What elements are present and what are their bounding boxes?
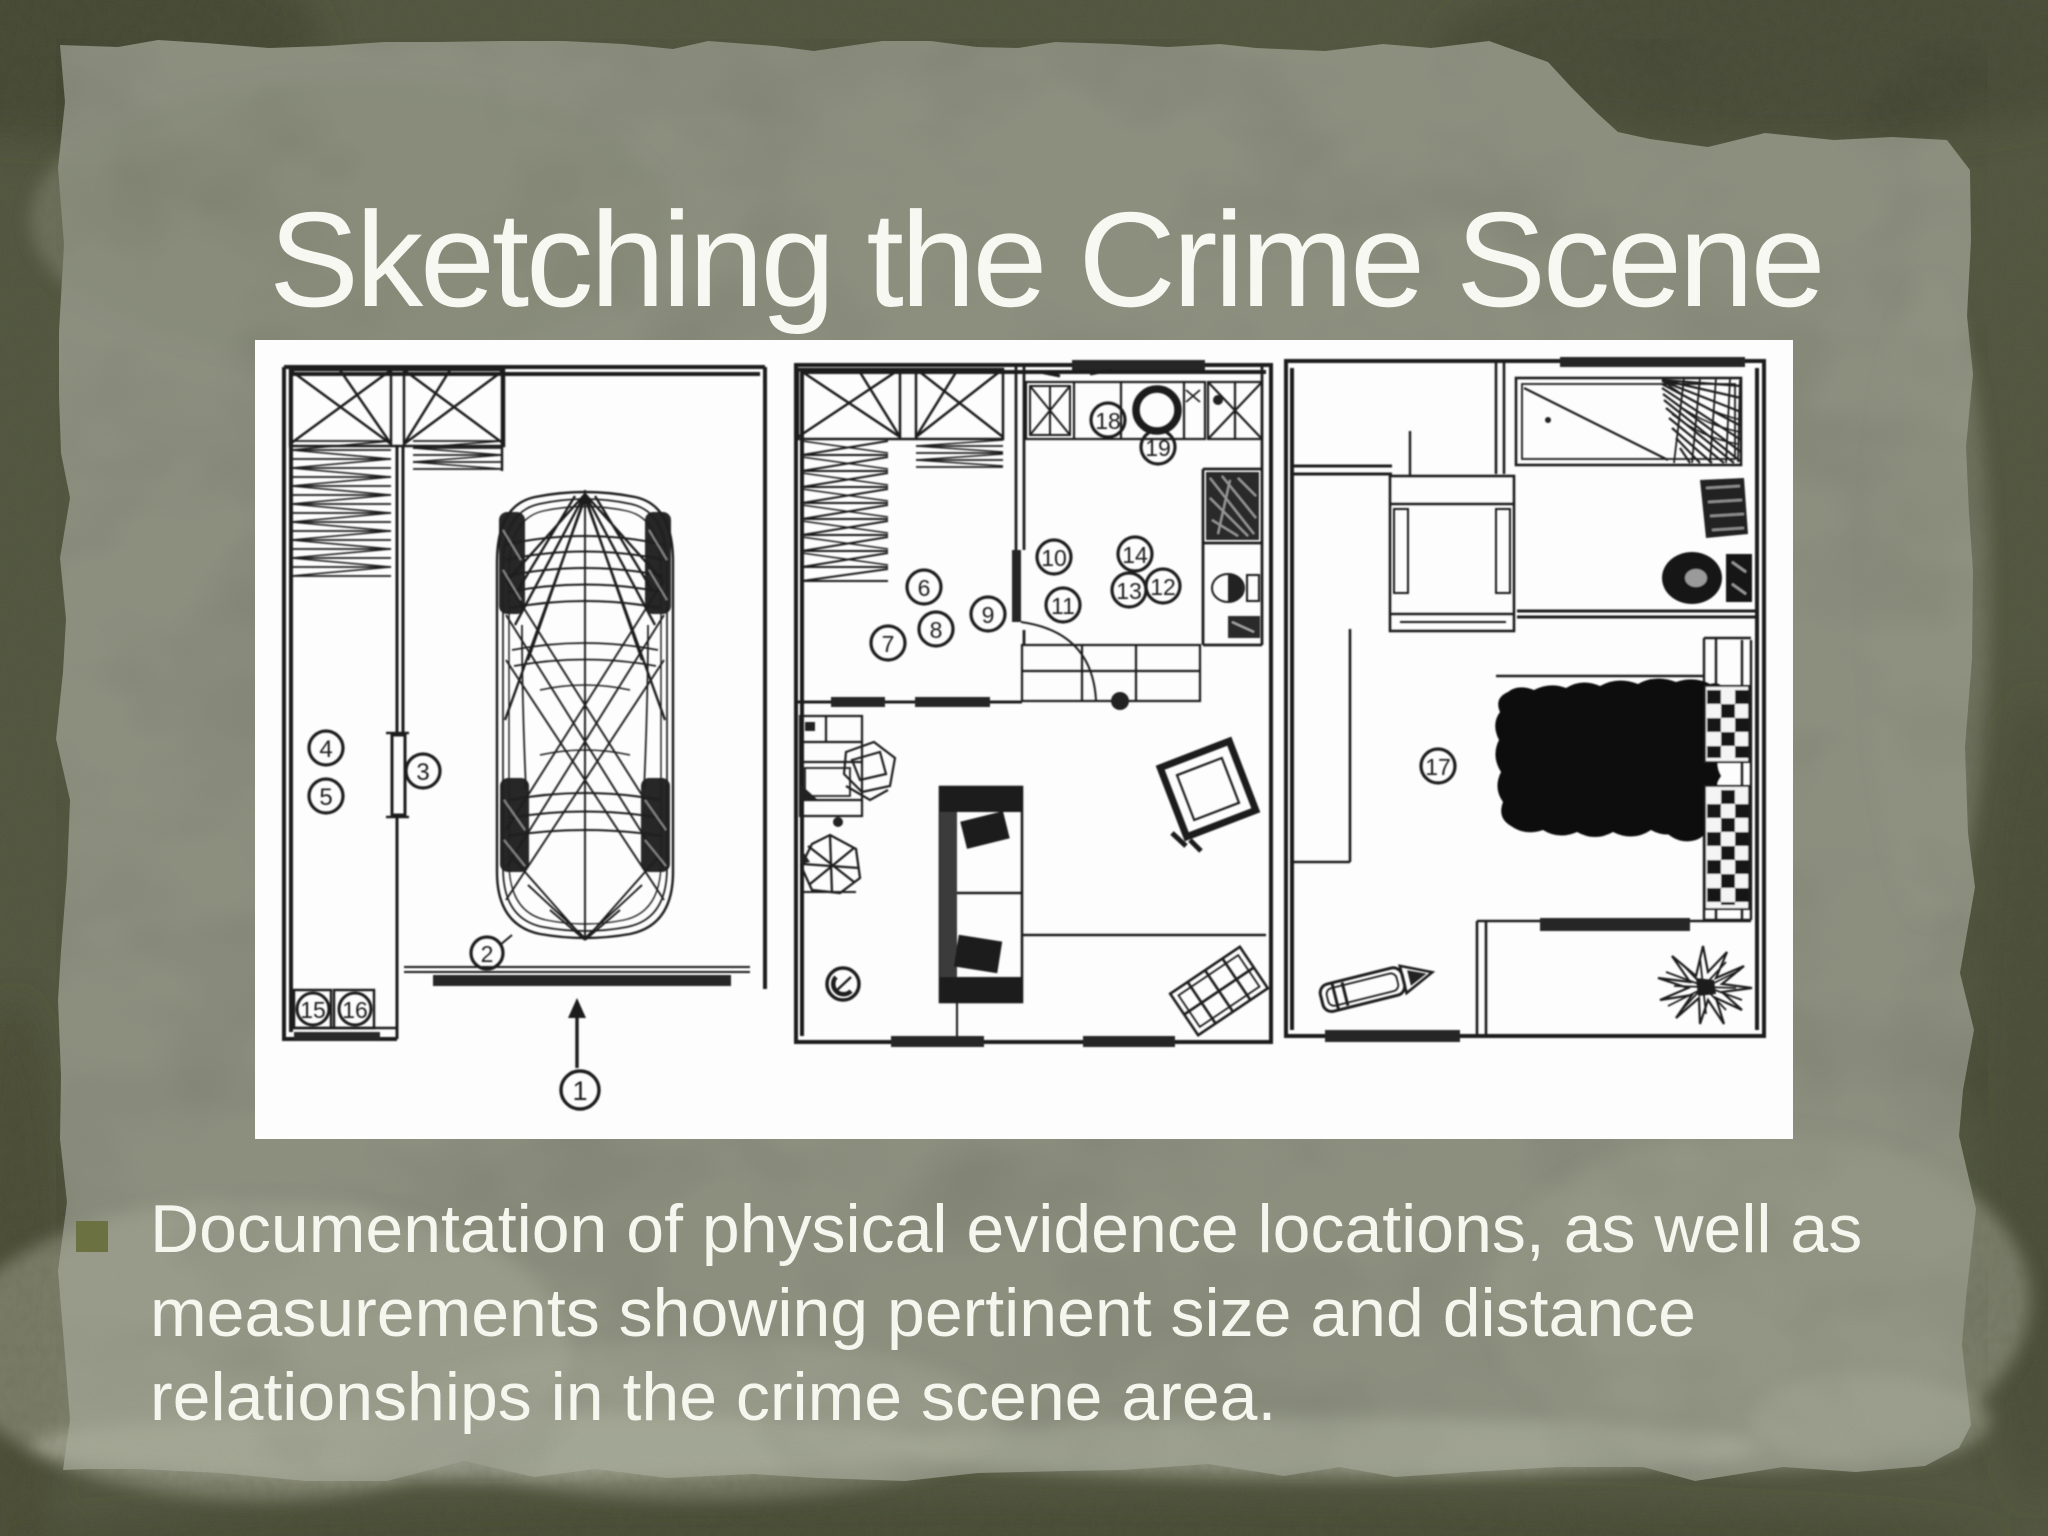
svg-text:14: 14 <box>1122 542 1148 568</box>
svg-text:3: 3 <box>416 759 429 786</box>
svg-text:6: 6 <box>918 575 931 601</box>
svg-text:19: 19 <box>1145 435 1171 461</box>
svg-text:17: 17 <box>1425 754 1451 780</box>
svg-text:2: 2 <box>481 941 494 967</box>
svg-text:7: 7 <box>882 631 895 657</box>
svg-text:10: 10 <box>1041 545 1067 571</box>
svg-text:5: 5 <box>319 784 332 811</box>
svg-text:12: 12 <box>1150 574 1176 600</box>
svg-text:11: 11 <box>1051 593 1075 619</box>
svg-text:15: 15 <box>300 997 326 1023</box>
svg-text:9: 9 <box>982 602 995 628</box>
svg-text:4: 4 <box>319 736 332 763</box>
svg-text:1: 1 <box>572 1076 587 1106</box>
svg-text:13: 13 <box>1116 578 1142 604</box>
svg-text:18: 18 <box>1095 408 1121 434</box>
svg-text:16: 16 <box>342 997 368 1023</box>
svg-text:8: 8 <box>930 617 943 643</box>
